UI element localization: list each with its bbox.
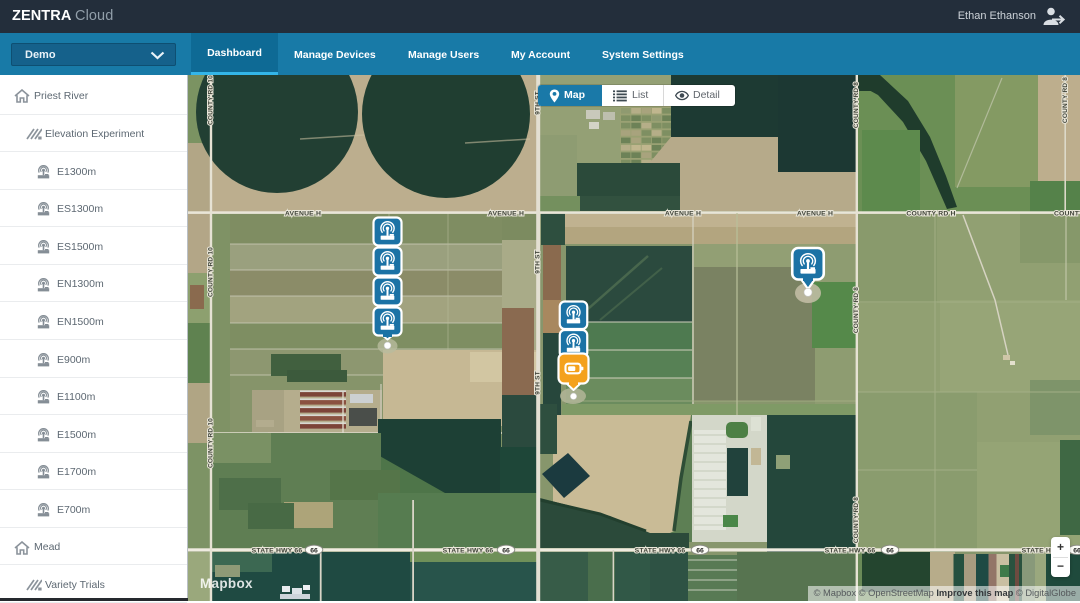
svg-text:COUNTY RD H: COUNTY RD H <box>906 210 955 217</box>
svg-text:STATE HWY 66: STATE HWY 66 <box>635 548 686 555</box>
svg-text:66: 66 <box>886 547 894 554</box>
svg-text:STATE HWY 66: STATE HWY 66 <box>252 548 303 555</box>
svg-text:66: 66 <box>310 547 318 554</box>
svg-text:AVENUE H: AVENUE H <box>488 210 524 217</box>
svg-text:COUNTY RD: COUNTY RD <box>1054 210 1080 217</box>
svg-text:COUNTY RD 10: COUNTY RD 10 <box>208 75 215 125</box>
svg-text:66: 66 <box>696 547 704 554</box>
svg-text:STATE HWY 66: STATE HWY 66 <box>825 548 876 555</box>
svg-text:AVENUE H: AVENUE H <box>665 210 701 217</box>
svg-text:AVENUE H: AVENUE H <box>285 210 321 217</box>
svg-text:COUNTY RD 8: COUNTY RD 8 <box>853 287 860 333</box>
svg-text:AVENUE H: AVENUE H <box>797 210 833 217</box>
svg-text:COUNTY RD 8: COUNTY RD 8 <box>853 82 860 128</box>
svg-text:66: 66 <box>502 547 510 554</box>
svg-text:9TH ST: 9TH ST <box>535 371 542 395</box>
svg-text:COUNTY RD 8: COUNTY RD 8 <box>1062 77 1069 123</box>
svg-text:STATE HWY 66: STATE HWY 66 <box>443 548 494 555</box>
svg-text:COUNTY RD 10: COUNTY RD 10 <box>208 247 215 297</box>
svg-text:9TH ST: 9TH ST <box>535 250 542 274</box>
svg-text:COUNTY RD 10: COUNTY RD 10 <box>208 418 215 468</box>
svg-text:COUNTY RD 8: COUNTY RD 8 <box>853 497 860 543</box>
svg-text:66: 66 <box>1073 547 1080 554</box>
